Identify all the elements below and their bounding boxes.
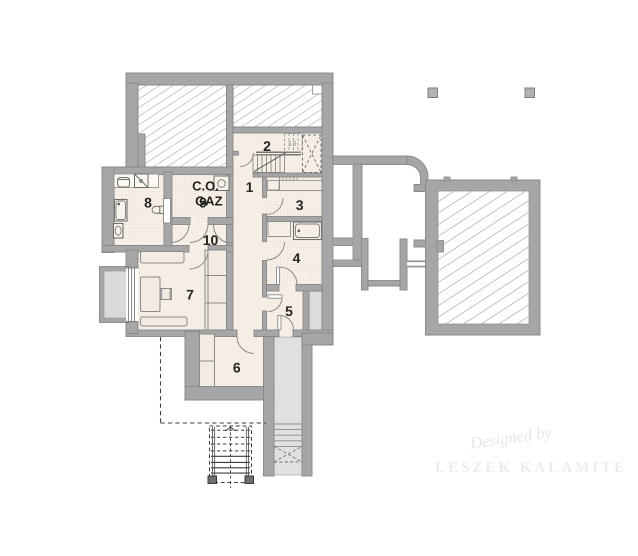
svg-text:1: 1	[246, 179, 254, 195]
svg-text:10: 10	[203, 232, 219, 248]
svg-text:7: 7	[186, 287, 194, 303]
svg-text:13: 13	[288, 139, 296, 148]
svg-text:6: 6	[233, 360, 241, 376]
svg-text:4: 4	[293, 250, 301, 266]
svg-text:3: 3	[296, 197, 304, 213]
svg-text:LESZEK KALAMITE: LESZEK KALAMITE	[435, 460, 627, 476]
svg-text:2: 2	[263, 138, 271, 154]
svg-text:C.O.: C.O.	[192, 178, 219, 193]
svg-text:8: 8	[144, 195, 152, 211]
svg-text:GAZ: GAZ	[195, 194, 223, 209]
svg-text:5: 5	[285, 303, 293, 319]
